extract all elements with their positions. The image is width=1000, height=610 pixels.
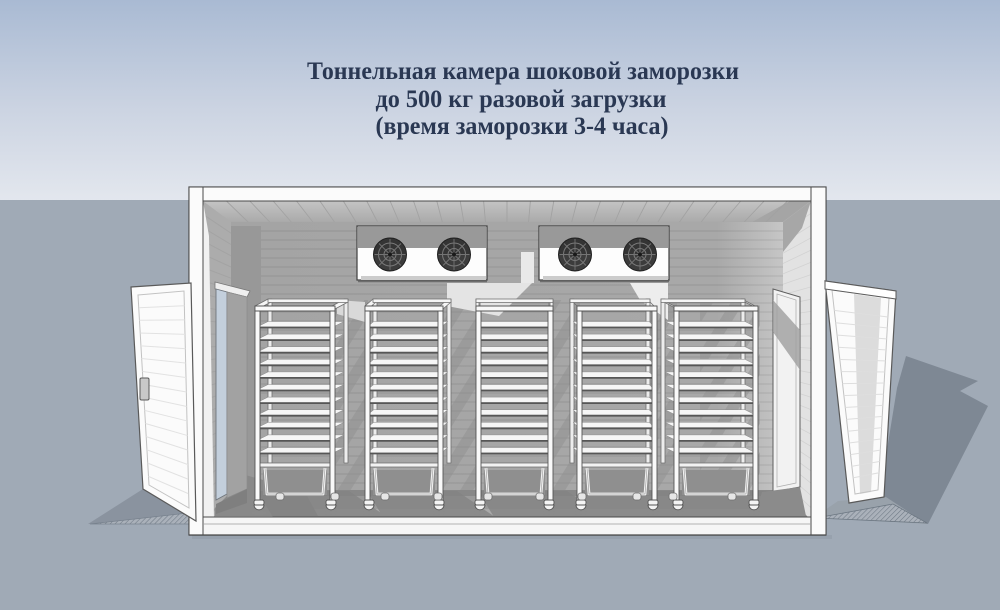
svg-text:до 500 кг разовой загрузки: до 500 кг разовой загрузки	[376, 86, 667, 113]
svg-text:(время заморозки 3-4 часа): (время заморозки 3-4 часа)	[376, 113, 669, 140]
svg-text:Тоннельная камера шоковой замо: Тоннельная камера шоковой заморозки	[307, 58, 739, 85]
